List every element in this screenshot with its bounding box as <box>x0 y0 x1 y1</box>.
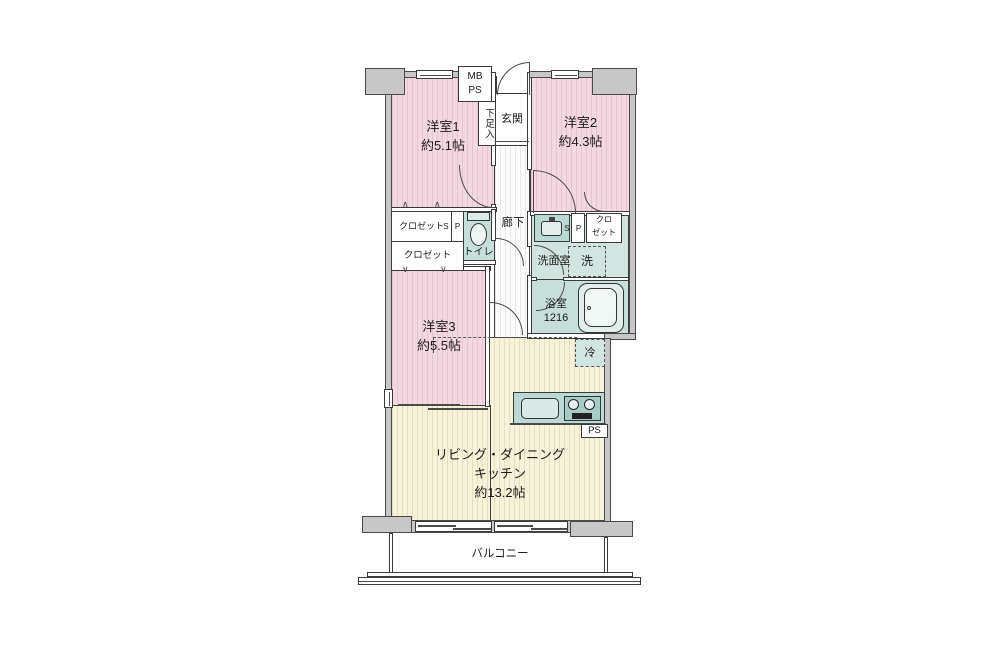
stove-burner-left <box>568 399 579 410</box>
bathtub-drain <box>587 306 591 310</box>
closet2-fold-mark-a: ∨ <box>402 265 409 274</box>
balcony-wall-left <box>389 533 393 577</box>
kitchen-counter <box>513 392 605 424</box>
closet2-fold-mark-b: ∨ <box>440 265 447 274</box>
vanity-tap <box>549 217 555 221</box>
toilet-icon <box>466 212 492 248</box>
window-balcony-2 <box>494 521 568 532</box>
window-room2 <box>551 70 579 79</box>
wall-washroom-bath <box>563 277 629 281</box>
bathtub-icon <box>578 283 624 333</box>
stove-burner-right <box>584 399 595 410</box>
fridge-box: 冷 <box>575 339 605 367</box>
ps-washroom-box: P S <box>571 213 585 243</box>
window-room1-sash <box>420 75 451 76</box>
column-top-right <box>592 68 637 95</box>
room3-sliding-door-b <box>428 408 488 410</box>
balcony-rail-midline <box>359 581 640 582</box>
bathroom-label: 浴室 1216 <box>534 297 578 326</box>
wall-washroom-hall-2 <box>527 275 532 337</box>
washroom-label: 洗面室 <box>531 254 577 270</box>
entrance-step-line <box>496 141 529 142</box>
window-room1 <box>416 70 453 79</box>
entrance-door-leaf <box>529 62 530 95</box>
closet1-fold-mark-a: ∧ <box>402 200 409 209</box>
ldk-label: リビング・ダイニング キッチン 約13.2帖 <box>418 446 582 503</box>
column-bottom-right <box>570 521 633 537</box>
entrance-label: 玄関 <box>494 112 530 128</box>
window-balcony-1 <box>415 521 492 532</box>
window-room3-sash <box>389 392 390 406</box>
outer-wall-left <box>385 88 392 520</box>
column-bottom-left <box>362 516 412 533</box>
stove-icon <box>564 396 601 421</box>
window-balcony-2-sash-b <box>531 528 567 530</box>
room1-label: 洋室1 約5.1帖 <box>393 118 493 156</box>
ps-top-box: P S <box>451 211 464 242</box>
wall-toilet-bottom <box>463 260 496 265</box>
vanity-bowl <box>541 221 562 236</box>
room2-door-leaf <box>533 170 534 213</box>
stove-grill <box>572 413 592 419</box>
window-room2-sash <box>555 75 577 76</box>
closet-small-box: クロ ゼット <box>586 213 622 243</box>
hallway-label: 廊下 <box>497 215 529 232</box>
outer-wall-right-upper <box>629 88 636 338</box>
toilet-label: トイレ <box>462 246 495 261</box>
window-balcony-1-sash-b <box>453 528 491 530</box>
toilet-bowl <box>470 223 487 246</box>
wall-washroom-bath-left <box>531 277 537 281</box>
window-room3-left <box>384 389 393 408</box>
room3-sliding-door-a <box>398 404 460 406</box>
room3-label: 洋室3 約5.5帖 <box>392 318 486 356</box>
balcony-label: バルコニー <box>455 546 545 563</box>
floor-plan: MB PS 下足入 クロゼット P S クロゼット ∧ ∧ ∨ ∨ P S クロ… <box>0 0 1000 650</box>
entrance-door-arc <box>497 62 530 95</box>
kitchen-sink-icon <box>521 398 559 419</box>
toilet-tank <box>467 212 490 221</box>
ps-kitchen-box: PS <box>581 424 608 438</box>
window-balcony-2-sash-a <box>497 525 533 527</box>
closet1-fold-mark-b: ∧ <box>434 200 441 209</box>
window-balcony-1-sash-a <box>418 525 456 527</box>
balcony-wall-right <box>604 537 608 577</box>
column-top-left <box>365 68 405 95</box>
balcony-rail-lower <box>358 577 641 585</box>
mb-ps-box: MB PS <box>458 66 492 102</box>
room2-label: 洋室2 約4.3帖 <box>532 114 629 152</box>
